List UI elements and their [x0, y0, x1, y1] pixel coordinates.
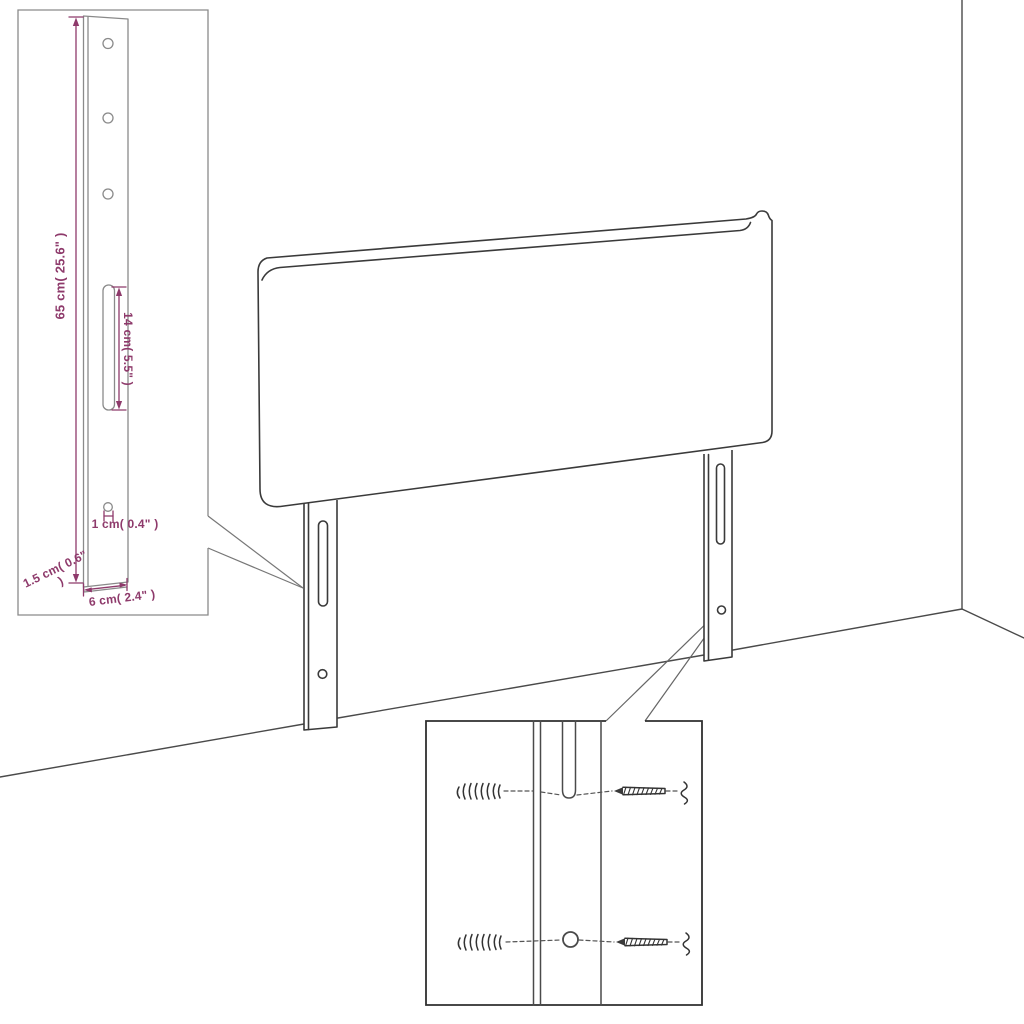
leg-left-slot: [319, 521, 328, 606]
dimension-label-leg-height: 65 cm( 25.6" ): [53, 232, 68, 319]
screw-bottom: [616, 938, 667, 946]
inset-mounting-border: [426, 721, 702, 1005]
panel-outline: [258, 211, 772, 507]
leg-right-hole: [718, 606, 726, 614]
floor-line-mid-right: [733, 609, 962, 650]
dimension-label-hole-diameter: 1 cm( 0.4" ): [92, 517, 159, 531]
inset-strip-slot: [563, 721, 576, 798]
inset-small-hole: [104, 503, 113, 512]
leg-right-slot: [717, 464, 725, 544]
dimension-leg-height: [69, 17, 83, 583]
screw-head-profile-bottom: [683, 933, 689, 955]
screw-top: [614, 787, 665, 795]
floor-line-right: [962, 609, 1024, 638]
screw-head-profile-top: [681, 782, 687, 804]
wall-anchor-top: [457, 784, 500, 800]
alignment-dashed-lines: [504, 791, 682, 942]
inset-mounting-detail: [426, 721, 702, 1005]
inset-hole-2: [103, 113, 113, 123]
product-diagram: 65 cm( 25.6" ) 14 cm( 5.5" ) 1 cm( 0.4" …: [0, 0, 1024, 1024]
inset-slot: [103, 285, 115, 410]
callout-from-leg-inset: [208, 516, 303, 588]
leg-left-hole: [318, 670, 327, 679]
inset-hole-1: [103, 39, 113, 49]
floor-line-mid: [338, 655, 704, 718]
inset-leg-drawing: [84, 16, 129, 592]
dimension-label-slot-length: 14 cm( 5.5" ): [121, 312, 135, 386]
wall-anchor-bottom: [458, 935, 501, 951]
inset-leg-strip: [534, 721, 602, 1005]
headboard-panel: [258, 211, 772, 507]
inset-hole-3: [103, 189, 113, 199]
floor-line-left: [0, 724, 304, 777]
diagram-canvas: [0, 0, 1024, 1024]
inset-strip-hole: [563, 932, 578, 947]
